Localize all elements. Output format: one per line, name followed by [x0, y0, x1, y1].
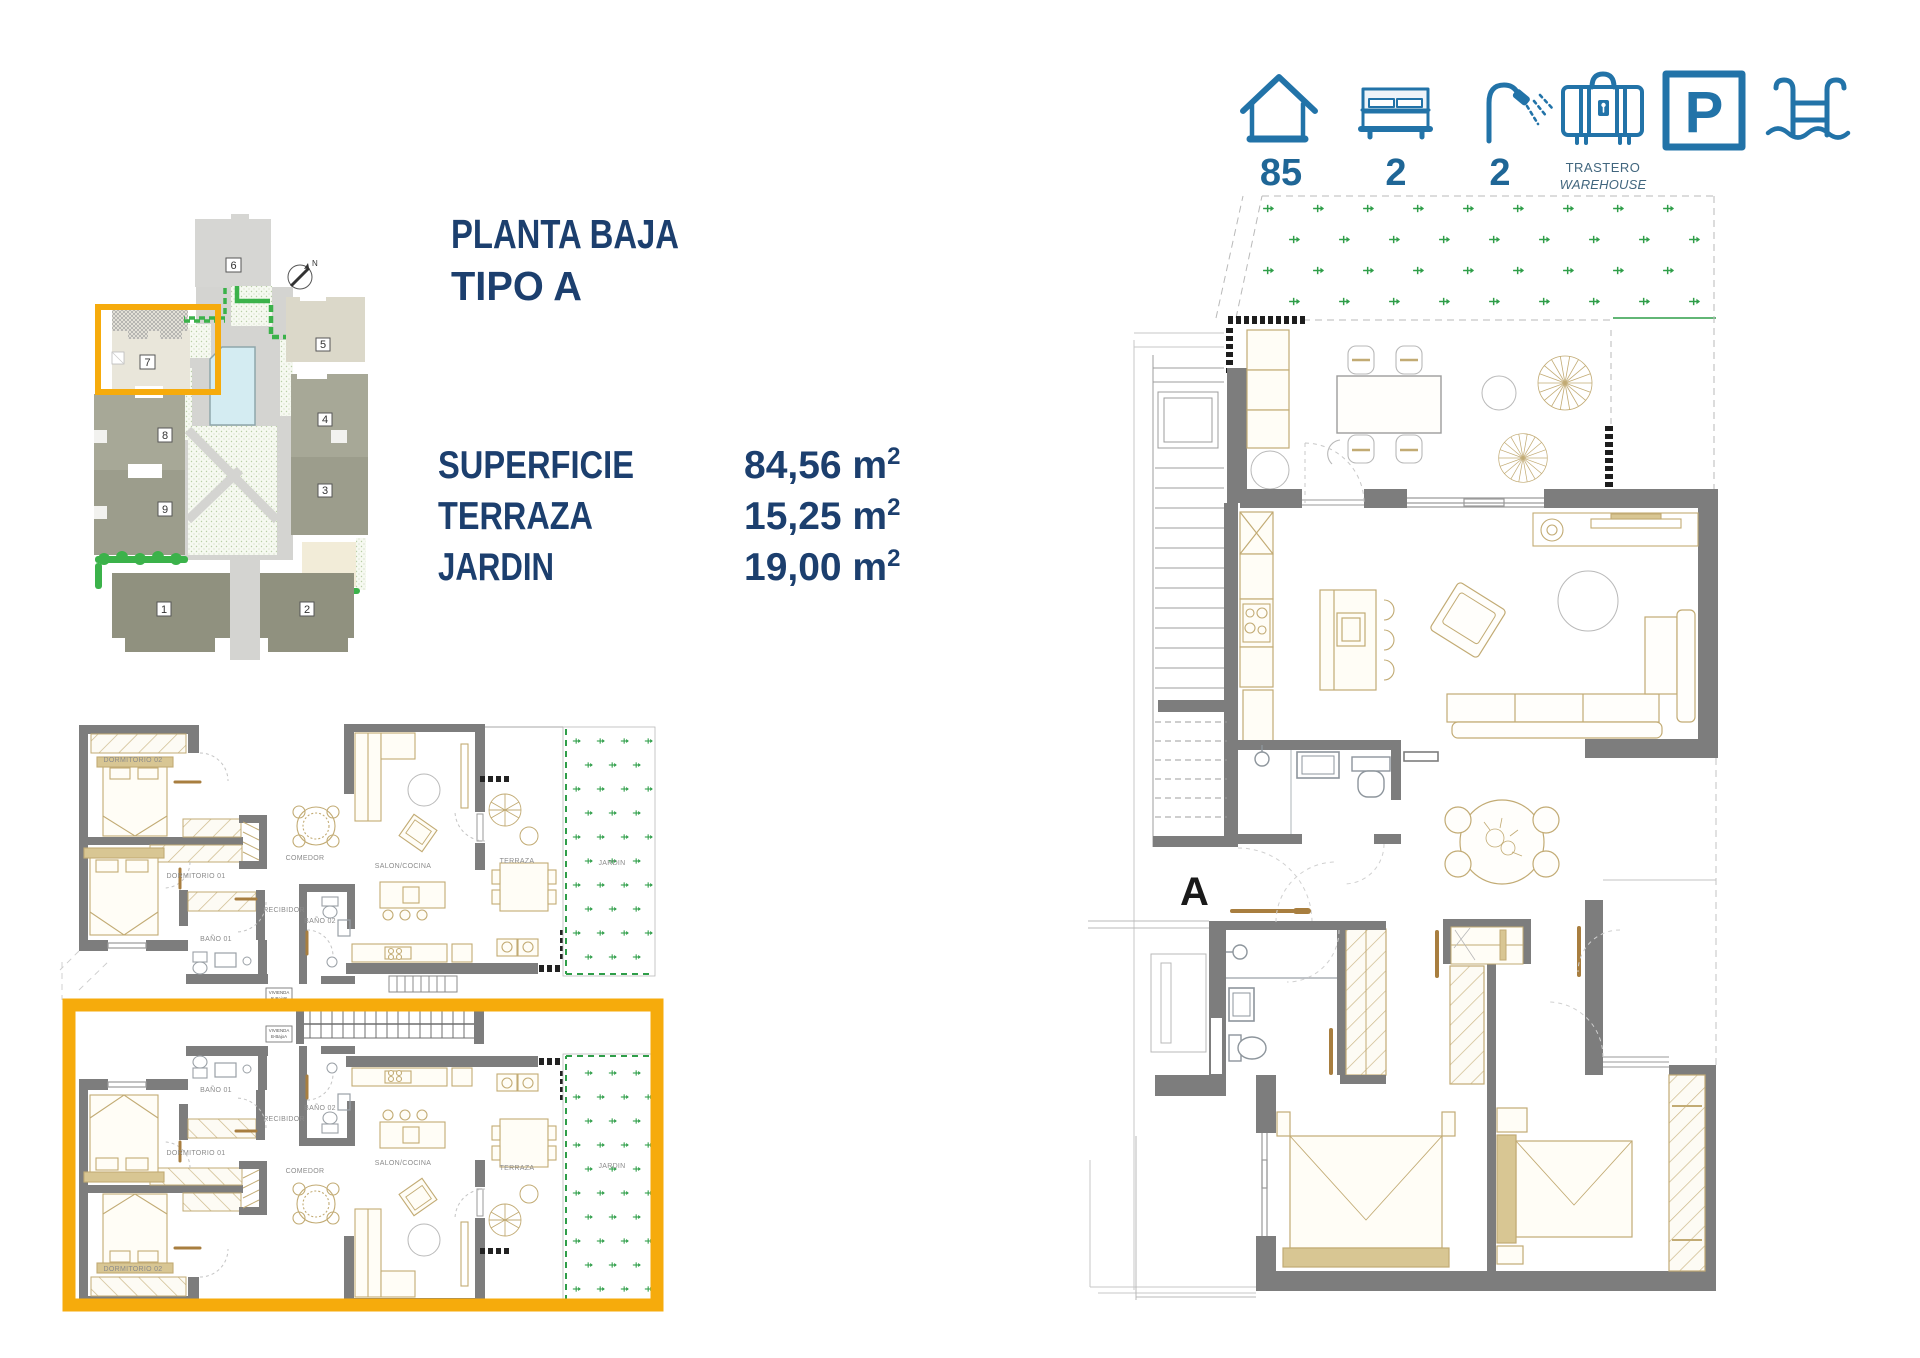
svg-text:TERRAZA: TERRAZA	[438, 495, 593, 538]
svg-text:19,00 m2: 19,00 m2	[744, 545, 900, 589]
svg-text:2: 2	[304, 604, 310, 616]
svg-text:85: 85	[1260, 152, 1302, 194]
svg-text:COMEDOR: COMEDOR	[286, 1168, 325, 1175]
svg-text:RECIBIDOR: RECIBIDOR	[263, 907, 305, 914]
svg-text:TERRAZA: TERRAZA	[500, 1165, 535, 1172]
svg-text:VIVIENDA: VIVIENDA	[269, 990, 290, 995]
svg-text:BAÑO 02: BAÑO 02	[304, 1103, 336, 1112]
svg-text:PLANTA BAJA: PLANTA BAJA	[451, 211, 679, 257]
svg-text:9: 9	[162, 504, 168, 516]
svg-text:6: 6	[230, 260, 236, 272]
svg-text:RECIBIDOR: RECIBIDOR	[263, 1116, 305, 1123]
svg-text:TIPO A: TIPO A	[451, 263, 582, 309]
svg-text:DORMITORIO 01: DORMITORIO 01	[166, 873, 225, 880]
svg-text:DORMITORIO 01: DORMITORIO 01	[166, 1150, 225, 1157]
svg-text:P: P	[1685, 80, 1724, 145]
svg-text:BAÑO 01: BAÑO 01	[200, 934, 232, 943]
svg-text:SALON/COCINA: SALON/COCINA	[375, 863, 432, 870]
svg-text:3: 3	[322, 485, 328, 497]
svg-text:COMEDOR: COMEDOR	[286, 855, 325, 862]
svg-text:A: A	[1180, 870, 1209, 914]
svg-text:2: 2	[1489, 152, 1510, 194]
svg-text:VIVIENDA: VIVIENDA	[269, 1028, 290, 1033]
svg-text:2: 2	[1385, 152, 1406, 194]
svg-text:DORMITORIO 02: DORMITORIO 02	[103, 757, 162, 764]
svg-text:5: 5	[320, 339, 326, 351]
svg-text:4: 4	[322, 414, 328, 426]
svg-text:BAÑO 02: BAÑO 02	[304, 916, 336, 925]
svg-text:BAÑO 01: BAÑO 01	[200, 1085, 232, 1094]
svg-text:TERRAZA: TERRAZA	[500, 858, 535, 865]
svg-text:84,56 m2: 84,56 m2	[744, 443, 900, 487]
svg-text:B-BajoA: B-BajoA	[271, 1034, 287, 1039]
svg-text:JARDIN: JARDIN	[438, 546, 554, 589]
svg-text:TRASTERO: TRASTERO	[1566, 160, 1641, 175]
svg-text:DORMITORIO 02: DORMITORIO 02	[103, 1266, 162, 1273]
svg-text:SUPERFICIE: SUPERFICIE	[438, 444, 634, 487]
svg-text:1: 1	[161, 604, 167, 616]
svg-text:WAREHOUSE: WAREHOUSE	[1560, 177, 1647, 192]
svg-text:15,25 m2: 15,25 m2	[744, 494, 900, 538]
svg-text:JARDIN: JARDIN	[598, 860, 625, 867]
svg-text:8: 8	[162, 430, 168, 442]
svg-text:7: 7	[144, 357, 150, 369]
svg-text:SALON/COCINA: SALON/COCINA	[375, 1160, 432, 1167]
svg-text:N: N	[312, 259, 318, 268]
svg-text:JARDIN: JARDIN	[598, 1163, 625, 1170]
